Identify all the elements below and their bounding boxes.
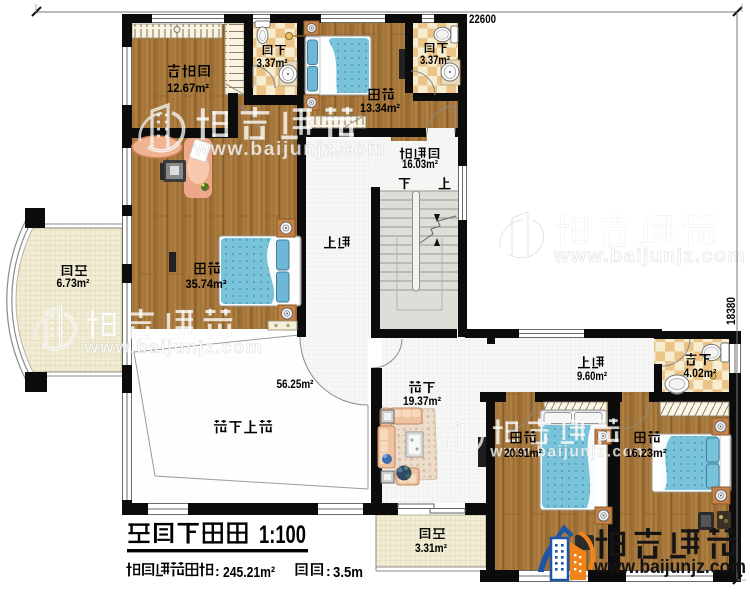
svg-text::: : — [215, 563, 220, 579]
svg-text:www.baijunjz.com: www.baijunjz.com — [83, 337, 263, 357]
svg-text:1:100: 1:100 — [259, 521, 306, 549]
svg-text:16.03m²: 16.03m² — [402, 159, 438, 171]
svg-text:19.37m²: 19.37m² — [403, 394, 441, 408]
svg-text:22600: 22600 — [469, 12, 496, 26]
svg-text:www.baijunjz.com: www.baijunjz.com — [193, 138, 386, 160]
svg-text:18380: 18380 — [724, 297, 738, 325]
svg-text:12.67m²: 12.67m² — [167, 81, 209, 95]
svg-text:13.34m²: 13.34m² — [360, 101, 400, 115]
svg-text:www.baijunjz.com: www.baijunjz.com — [593, 557, 746, 578]
svg-text:56.25m²: 56.25m² — [277, 377, 314, 391]
svg-text:16.23m²: 16.23m² — [626, 446, 667, 460]
svg-text:35.74m²: 35.74m² — [186, 277, 227, 291]
svg-text:245.21m²: 245.21m² — [223, 564, 275, 581]
svg-text:www.baijunjz.com: www.baijunjz.com — [553, 245, 746, 267]
svg-text:3.31m²: 3.31m² — [415, 543, 447, 555]
svg-text:3.37m²: 3.37m² — [257, 58, 288, 70]
svg-text:4.02m²: 4.02m² — [684, 368, 717, 380]
svg-text::: : — [326, 563, 331, 579]
svg-text:3.37m²: 3.37m² — [420, 55, 450, 67]
svg-text:3.5m: 3.5m — [333, 564, 363, 581]
svg-text:6.73m²: 6.73m² — [57, 278, 90, 290]
svg-text:20.91m²: 20.91m² — [504, 446, 542, 460]
svg-text:9.60m²: 9.60m² — [577, 369, 607, 383]
